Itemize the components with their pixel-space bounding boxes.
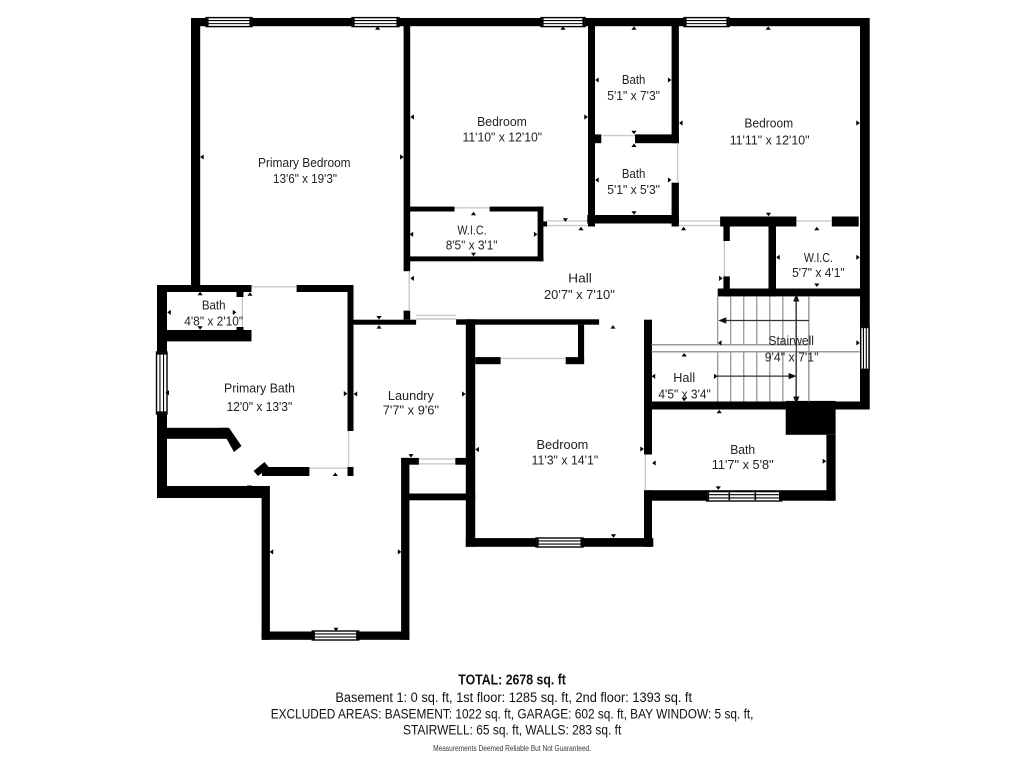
svg-text:11'3" x 14'1": 11'3" x 14'1" [532,453,599,468]
svg-text:Bedroom: Bedroom [477,114,527,129]
svg-text:4'5" x 3'4": 4'5" x 3'4" [658,386,711,401]
svg-text:5'7" x 4'1": 5'7" x 4'1" [792,265,845,280]
svg-text:11'7" x 5'8": 11'7" x 5'8" [712,457,774,472]
svg-text:W.I.C.: W.I.C. [804,250,833,265]
svg-text:Bath: Bath [622,166,646,181]
svg-text:Basement 1: 0 sq. ft, 1st floo: Basement 1: 0 sq. ft, 1st floor: 1285 sq… [335,690,692,705]
svg-text:W.I.C.: W.I.C. [457,223,486,238]
svg-text:Bath: Bath [730,442,755,457]
svg-text:11'11" x 12'10": 11'11" x 12'10" [730,133,810,148]
svg-text:STAIRWELL: 65 sq. ft, WALLS: 2: STAIRWELL: 65 sq. ft, WALLS: 283 sq. ft [403,723,622,738]
svg-text:Primary Bedroom: Primary Bedroom [258,155,351,170]
svg-text:Hall: Hall [673,370,695,385]
svg-text:TOTAL: 2678 sq. ft: TOTAL: 2678 sq. ft [458,673,566,689]
svg-text:Bedroom: Bedroom [744,116,793,131]
svg-text:Primary Bath: Primary Bath [224,381,295,396]
svg-text:Laundry: Laundry [388,388,434,403]
svg-text:Bath: Bath [622,72,646,87]
svg-text:20'7" x 7'10": 20'7" x 7'10" [544,287,615,302]
svg-text:Hall: Hall [568,271,592,286]
svg-text:7'7" x 9'6": 7'7" x 9'6" [383,403,440,418]
svg-text:EXCLUDED AREAS: BASEMENT: 1022: EXCLUDED AREAS: BASEMENT: 1022 sq. ft, G… [271,707,754,722]
svg-text:5'1" x 5'3": 5'1" x 5'3" [607,182,660,197]
svg-text:Measurements Deemed Reliable B: Measurements Deemed Reliable But Not Gua… [433,743,591,753]
svg-text:8'5" x 3'1": 8'5" x 3'1" [446,238,498,253]
svg-text:13'6" x 19'3": 13'6" x 19'3" [273,171,337,186]
svg-text:5'1" x 7'3": 5'1" x 7'3" [607,88,660,103]
svg-text:Bedroom: Bedroom [536,437,588,452]
svg-text:9'4" x 7'1": 9'4" x 7'1" [765,349,819,364]
svg-text:11'10" x 12'10": 11'10" x 12'10" [462,130,542,145]
svg-text:4'8" x 2'10": 4'8" x 2'10" [184,313,243,328]
svg-text:12'0" x 13'3": 12'0" x 13'3" [227,399,293,414]
svg-text:Stairwell: Stairwell [768,333,814,348]
svg-text:Bath: Bath [202,298,226,313]
